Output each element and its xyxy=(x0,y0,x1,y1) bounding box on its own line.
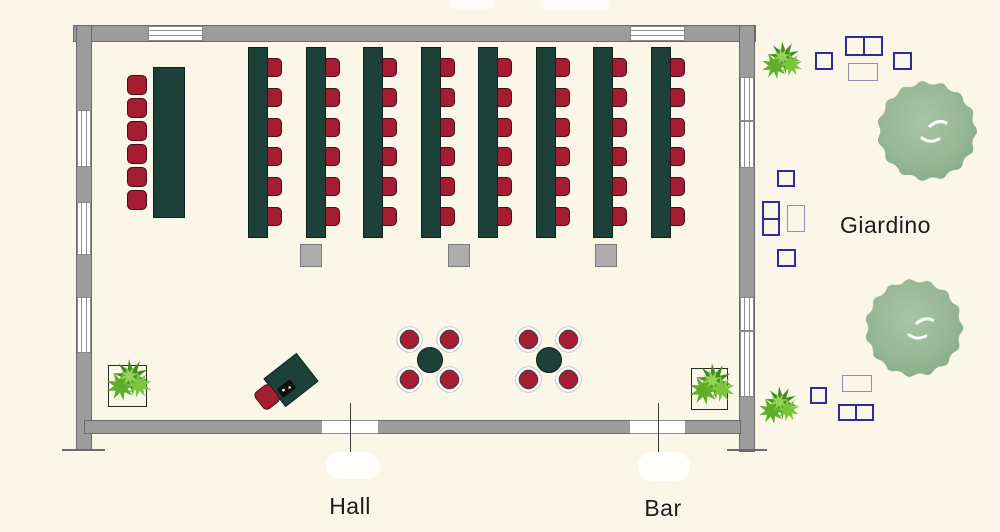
head-table-chair xyxy=(127,121,147,141)
classroom-table xyxy=(478,47,498,238)
attendee-chair xyxy=(325,177,340,196)
round-table-chair xyxy=(396,366,423,393)
tree-canopy xyxy=(866,279,963,377)
attendee-chair xyxy=(440,177,455,196)
garden-loveseat xyxy=(838,404,874,421)
garden-tree xyxy=(860,274,968,382)
door-bar-axis xyxy=(658,403,659,452)
planter-plant xyxy=(682,356,744,416)
attendee-chair xyxy=(670,177,685,196)
highlight-blob xyxy=(638,452,690,481)
seat-divider xyxy=(764,218,778,220)
seat-divider xyxy=(855,406,857,419)
attendee-chair xyxy=(440,88,455,107)
pillar xyxy=(300,244,322,267)
attendee-chair xyxy=(325,147,340,166)
attendee-chair xyxy=(382,88,397,107)
attendee-chair xyxy=(555,118,570,137)
planter-plant xyxy=(98,352,162,412)
classroom-table xyxy=(536,47,556,238)
round-table-chair xyxy=(436,366,463,393)
attendee-chair xyxy=(382,118,397,137)
pillar xyxy=(448,244,470,267)
classroom-table xyxy=(363,47,383,238)
round-table-chair xyxy=(515,366,542,393)
head-table-chair xyxy=(127,144,147,164)
window-mullion xyxy=(741,120,753,122)
attendee-chair xyxy=(497,177,512,196)
edge-smudge xyxy=(450,0,495,9)
attendee-chair xyxy=(325,207,340,226)
attendee-chair xyxy=(325,58,340,77)
attendee-chair xyxy=(497,58,512,77)
classroom-table xyxy=(593,47,613,238)
garden-chair xyxy=(810,387,827,404)
wall-end-tick-left xyxy=(62,449,105,451)
highlight-blob xyxy=(326,452,380,479)
attendee-chair xyxy=(440,147,455,166)
window-left-1 xyxy=(77,110,91,167)
attendee-chair xyxy=(555,207,570,226)
attendee-chair xyxy=(612,58,627,77)
attendee-chair xyxy=(670,118,685,137)
garden-table xyxy=(842,375,872,392)
attendee-chair xyxy=(382,147,397,166)
door-hall-axis xyxy=(350,403,351,452)
attendee-chair xyxy=(612,118,627,137)
attendee-chair xyxy=(440,207,455,226)
label-garden: Giardino xyxy=(840,212,931,239)
classroom-table xyxy=(248,47,268,238)
round-table-chair xyxy=(555,326,582,353)
seat-divider xyxy=(863,38,865,54)
attendee-chair xyxy=(497,207,512,226)
garden-table xyxy=(848,63,878,81)
attendee-chair xyxy=(325,118,340,137)
window-top-left xyxy=(148,26,203,41)
round-table-chair xyxy=(396,326,423,353)
head-table xyxy=(153,67,185,218)
attendee-chair xyxy=(555,88,570,107)
classroom-table xyxy=(421,47,441,238)
garden-bush xyxy=(756,34,810,90)
round-table-chair xyxy=(555,366,582,393)
floor-plan: Hall Bar Giardino xyxy=(0,0,1000,532)
head-table-chair xyxy=(127,98,147,118)
garden-loveseat xyxy=(845,36,883,56)
attendee-chair xyxy=(670,147,685,166)
attendee-chair xyxy=(497,118,512,137)
attendee-chair xyxy=(670,58,685,77)
garden-bush xyxy=(753,375,807,439)
garden-loveseat xyxy=(762,201,780,236)
garden-chair xyxy=(893,52,912,70)
attendee-chair xyxy=(382,177,397,196)
attendee-chair xyxy=(612,147,627,166)
attendee-chair xyxy=(497,147,512,166)
attendee-chair xyxy=(267,177,282,196)
round-table-chair xyxy=(436,326,463,353)
label-bar: Bar xyxy=(623,495,703,522)
attendee-chair xyxy=(440,118,455,137)
wall-end-tick-right xyxy=(727,449,767,451)
attendee-chair xyxy=(555,58,570,77)
attendee-chair xyxy=(555,147,570,166)
garden-chair xyxy=(777,170,795,187)
pillar xyxy=(595,244,617,267)
attendee-chair xyxy=(612,207,627,226)
attendee-chair xyxy=(670,207,685,226)
garden-table xyxy=(787,205,805,232)
window-top-right xyxy=(630,26,685,41)
round-table-chair xyxy=(515,326,542,353)
attendee-chair xyxy=(325,88,340,107)
attendee-chair xyxy=(440,58,455,77)
window-left-2 xyxy=(77,202,91,255)
garden-tree xyxy=(872,76,982,186)
head-table-chair xyxy=(127,75,147,95)
round-table xyxy=(417,347,443,373)
attendee-chair xyxy=(670,88,685,107)
attendee-chair xyxy=(612,177,627,196)
window-mullion xyxy=(741,330,753,332)
attendee-chair xyxy=(382,207,397,226)
tree-canopy xyxy=(878,81,977,181)
attendee-chair xyxy=(267,88,282,107)
attendee-chair xyxy=(267,118,282,137)
garden-chair xyxy=(815,52,833,70)
round-table xyxy=(536,347,562,373)
classroom-table xyxy=(306,47,326,238)
attendee-chair xyxy=(497,88,512,107)
attendee-chair xyxy=(267,207,282,226)
edge-smudge xyxy=(540,0,610,10)
classroom-table xyxy=(651,47,671,238)
attendee-chair xyxy=(612,88,627,107)
attendee-chair xyxy=(382,58,397,77)
attendee-chair xyxy=(267,147,282,166)
label-hall: Hall xyxy=(310,493,390,520)
attendee-chair xyxy=(267,58,282,77)
garden-chair xyxy=(777,249,796,267)
window-right-1 xyxy=(740,77,754,168)
head-table-chair xyxy=(127,190,147,210)
head-table-chair xyxy=(127,167,147,187)
attendee-chair xyxy=(555,177,570,196)
window-left-3 xyxy=(77,297,91,353)
